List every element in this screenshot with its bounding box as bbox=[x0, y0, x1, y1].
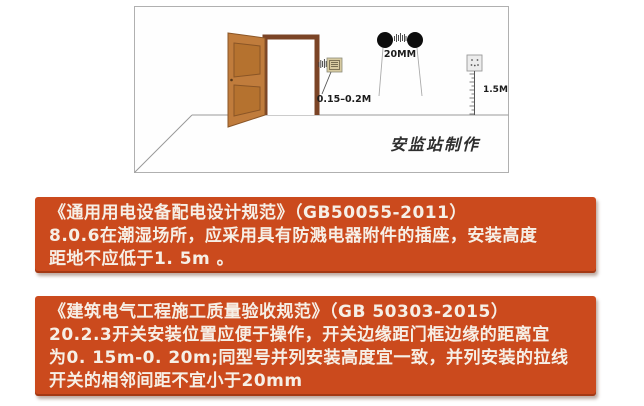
door-upper-panel bbox=[234, 43, 260, 77]
page: 0.15–0.2M 20MM 1.5M 安监站制作 《通用用电设备配电设计规范》… bbox=[0, 0, 644, 406]
regulation-text-line: 为0. 15m-0. 20m;同型号并列安装高度宜一致，并列安装的拉线 bbox=[49, 347, 584, 370]
installation-diagram: 0.15–0.2M 20MM 1.5M 安监站制作 bbox=[134, 6, 509, 173]
watermark-text: 安监站制作 bbox=[390, 135, 481, 154]
regulation-text-line: 20.2.3开关安装位置应便于操作，开关边缘距门框边缘的距离宜 bbox=[49, 324, 584, 347]
regulation-text-line: 8.0.6在潮湿场所，应采用具有防溅电器附件的插座，安装高度 bbox=[49, 225, 584, 248]
regulation-text-line: 距地不应低于1. 5m 。 bbox=[49, 248, 584, 271]
regulation-box-gb50055: 《通用用电设备配电设计规范》（GB50055-2011） 8.0.6在潮湿场所，… bbox=[35, 197, 596, 273]
pull-switch-left bbox=[377, 32, 393, 48]
regulation-title: 《建筑电气工程施工质量验收规范》（GB 50303-2015） bbox=[49, 301, 584, 324]
dimension-serration-pull-switches bbox=[395, 33, 407, 42]
regulation-text-line: 开关的相邻间距不宜小于20mm bbox=[49, 370, 584, 393]
label-pull-switch-gap: 20MM bbox=[384, 49, 416, 60]
wall-switch bbox=[327, 58, 342, 72]
pull-switch-right bbox=[407, 32, 423, 48]
regulation-box-gb50303: 《建筑电气工程施工质量验收规范》（GB 50303-2015） 20.2.3开关… bbox=[35, 296, 596, 396]
door-frame bbox=[265, 37, 317, 115]
door-handle bbox=[230, 79, 233, 82]
label-switch-door-distance: 0.15–0.2M bbox=[317, 94, 371, 105]
wall-socket bbox=[467, 55, 482, 71]
label-socket-height: 1.5M bbox=[483, 85, 508, 95]
door-lower-panel bbox=[234, 85, 260, 116]
regulation-title: 《通用用电设备配电设计规范》（GB50055-2011） bbox=[49, 202, 584, 225]
